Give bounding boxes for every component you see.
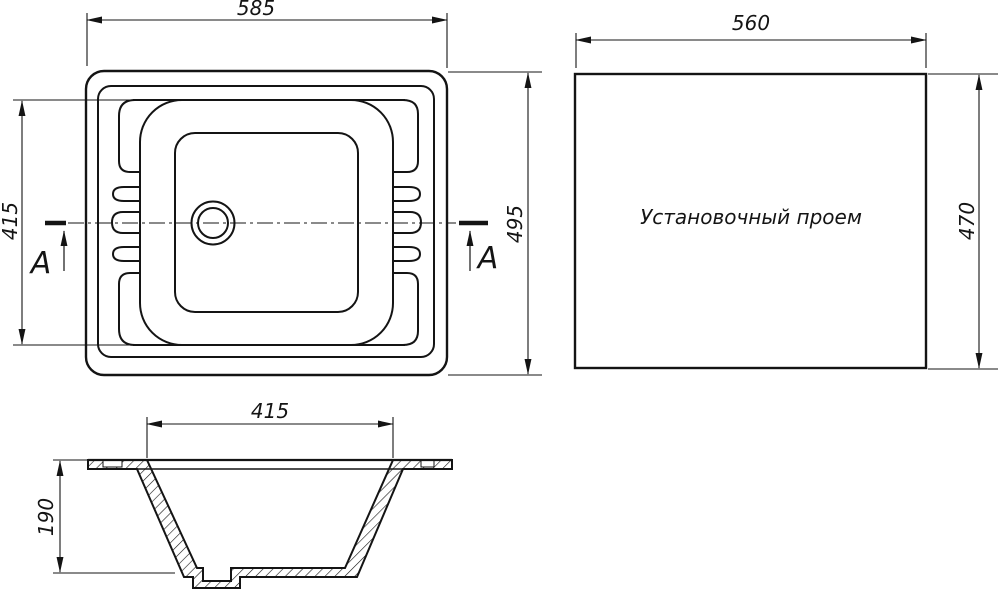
opening-view: Установочный проем 560 470 <box>575 11 998 369</box>
dim-585-text: 585 <box>237 0 275 20</box>
ledge-corner-top-right <box>392 100 418 172</box>
dim-560 <box>576 33 926 68</box>
drawing-canvas: A A 585 415 495 Установочный проем <box>0 0 1000 590</box>
dim-470-text: 470 <box>955 202 979 240</box>
dim-415-section-text: 415 <box>251 399 289 423</box>
dim-190-text: 190 <box>34 498 58 536</box>
opening-label: Установочный проем <box>640 205 862 229</box>
drain-ribs-left <box>112 187 140 261</box>
ledge-corner-bottom-right <box>392 273 418 345</box>
drain-ribs-right <box>393 187 421 261</box>
technical-drawing-sink: A A 585 415 495 Установочный проем <box>0 0 1000 590</box>
dim-415-section <box>147 417 393 458</box>
ledge-corner-bottom-left <box>119 273 141 345</box>
dim-415-plan-text: 415 <box>0 202 22 240</box>
section-view: 415 190 <box>34 399 452 588</box>
sink-inner-rim <box>98 86 434 357</box>
section-label-left: A <box>29 246 52 281</box>
section-cut-marks <box>45 223 488 271</box>
dim-495-text: 495 <box>503 205 527 243</box>
plan-view: A A 585 415 495 <box>0 0 542 375</box>
section-label-right: A <box>476 241 499 276</box>
dim-585 <box>87 13 447 68</box>
dim-560-text: 560 <box>732 11 770 35</box>
ledge-corner-top-left <box>119 100 141 172</box>
section-shell <box>88 460 452 588</box>
